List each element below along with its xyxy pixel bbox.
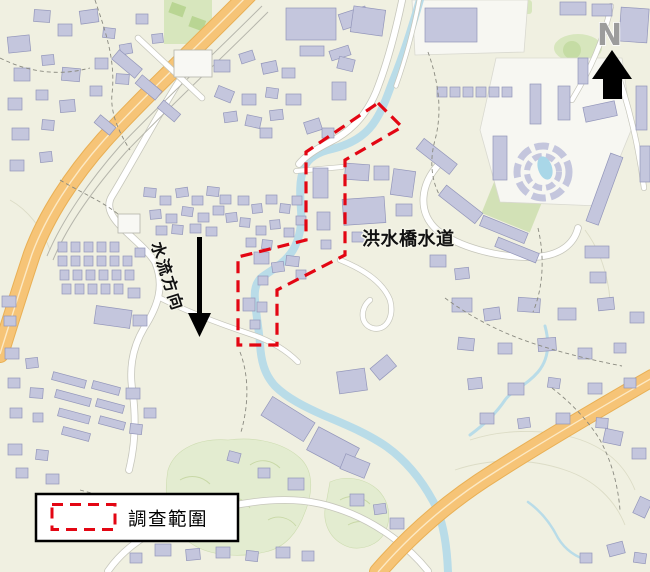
map-figure: 洪水橋水道 水流方向 N 調查範圍 <box>0 0 650 572</box>
map-canvas: 洪水橋水道 水流方向 N 調查範圍 <box>0 0 650 572</box>
watercourse-label: 洪水橋水道 <box>362 228 455 250</box>
legend-label: 調查範圍 <box>128 510 208 531</box>
north-label: N <box>597 18 622 53</box>
legend-box: 調查範圍 <box>36 494 238 541</box>
